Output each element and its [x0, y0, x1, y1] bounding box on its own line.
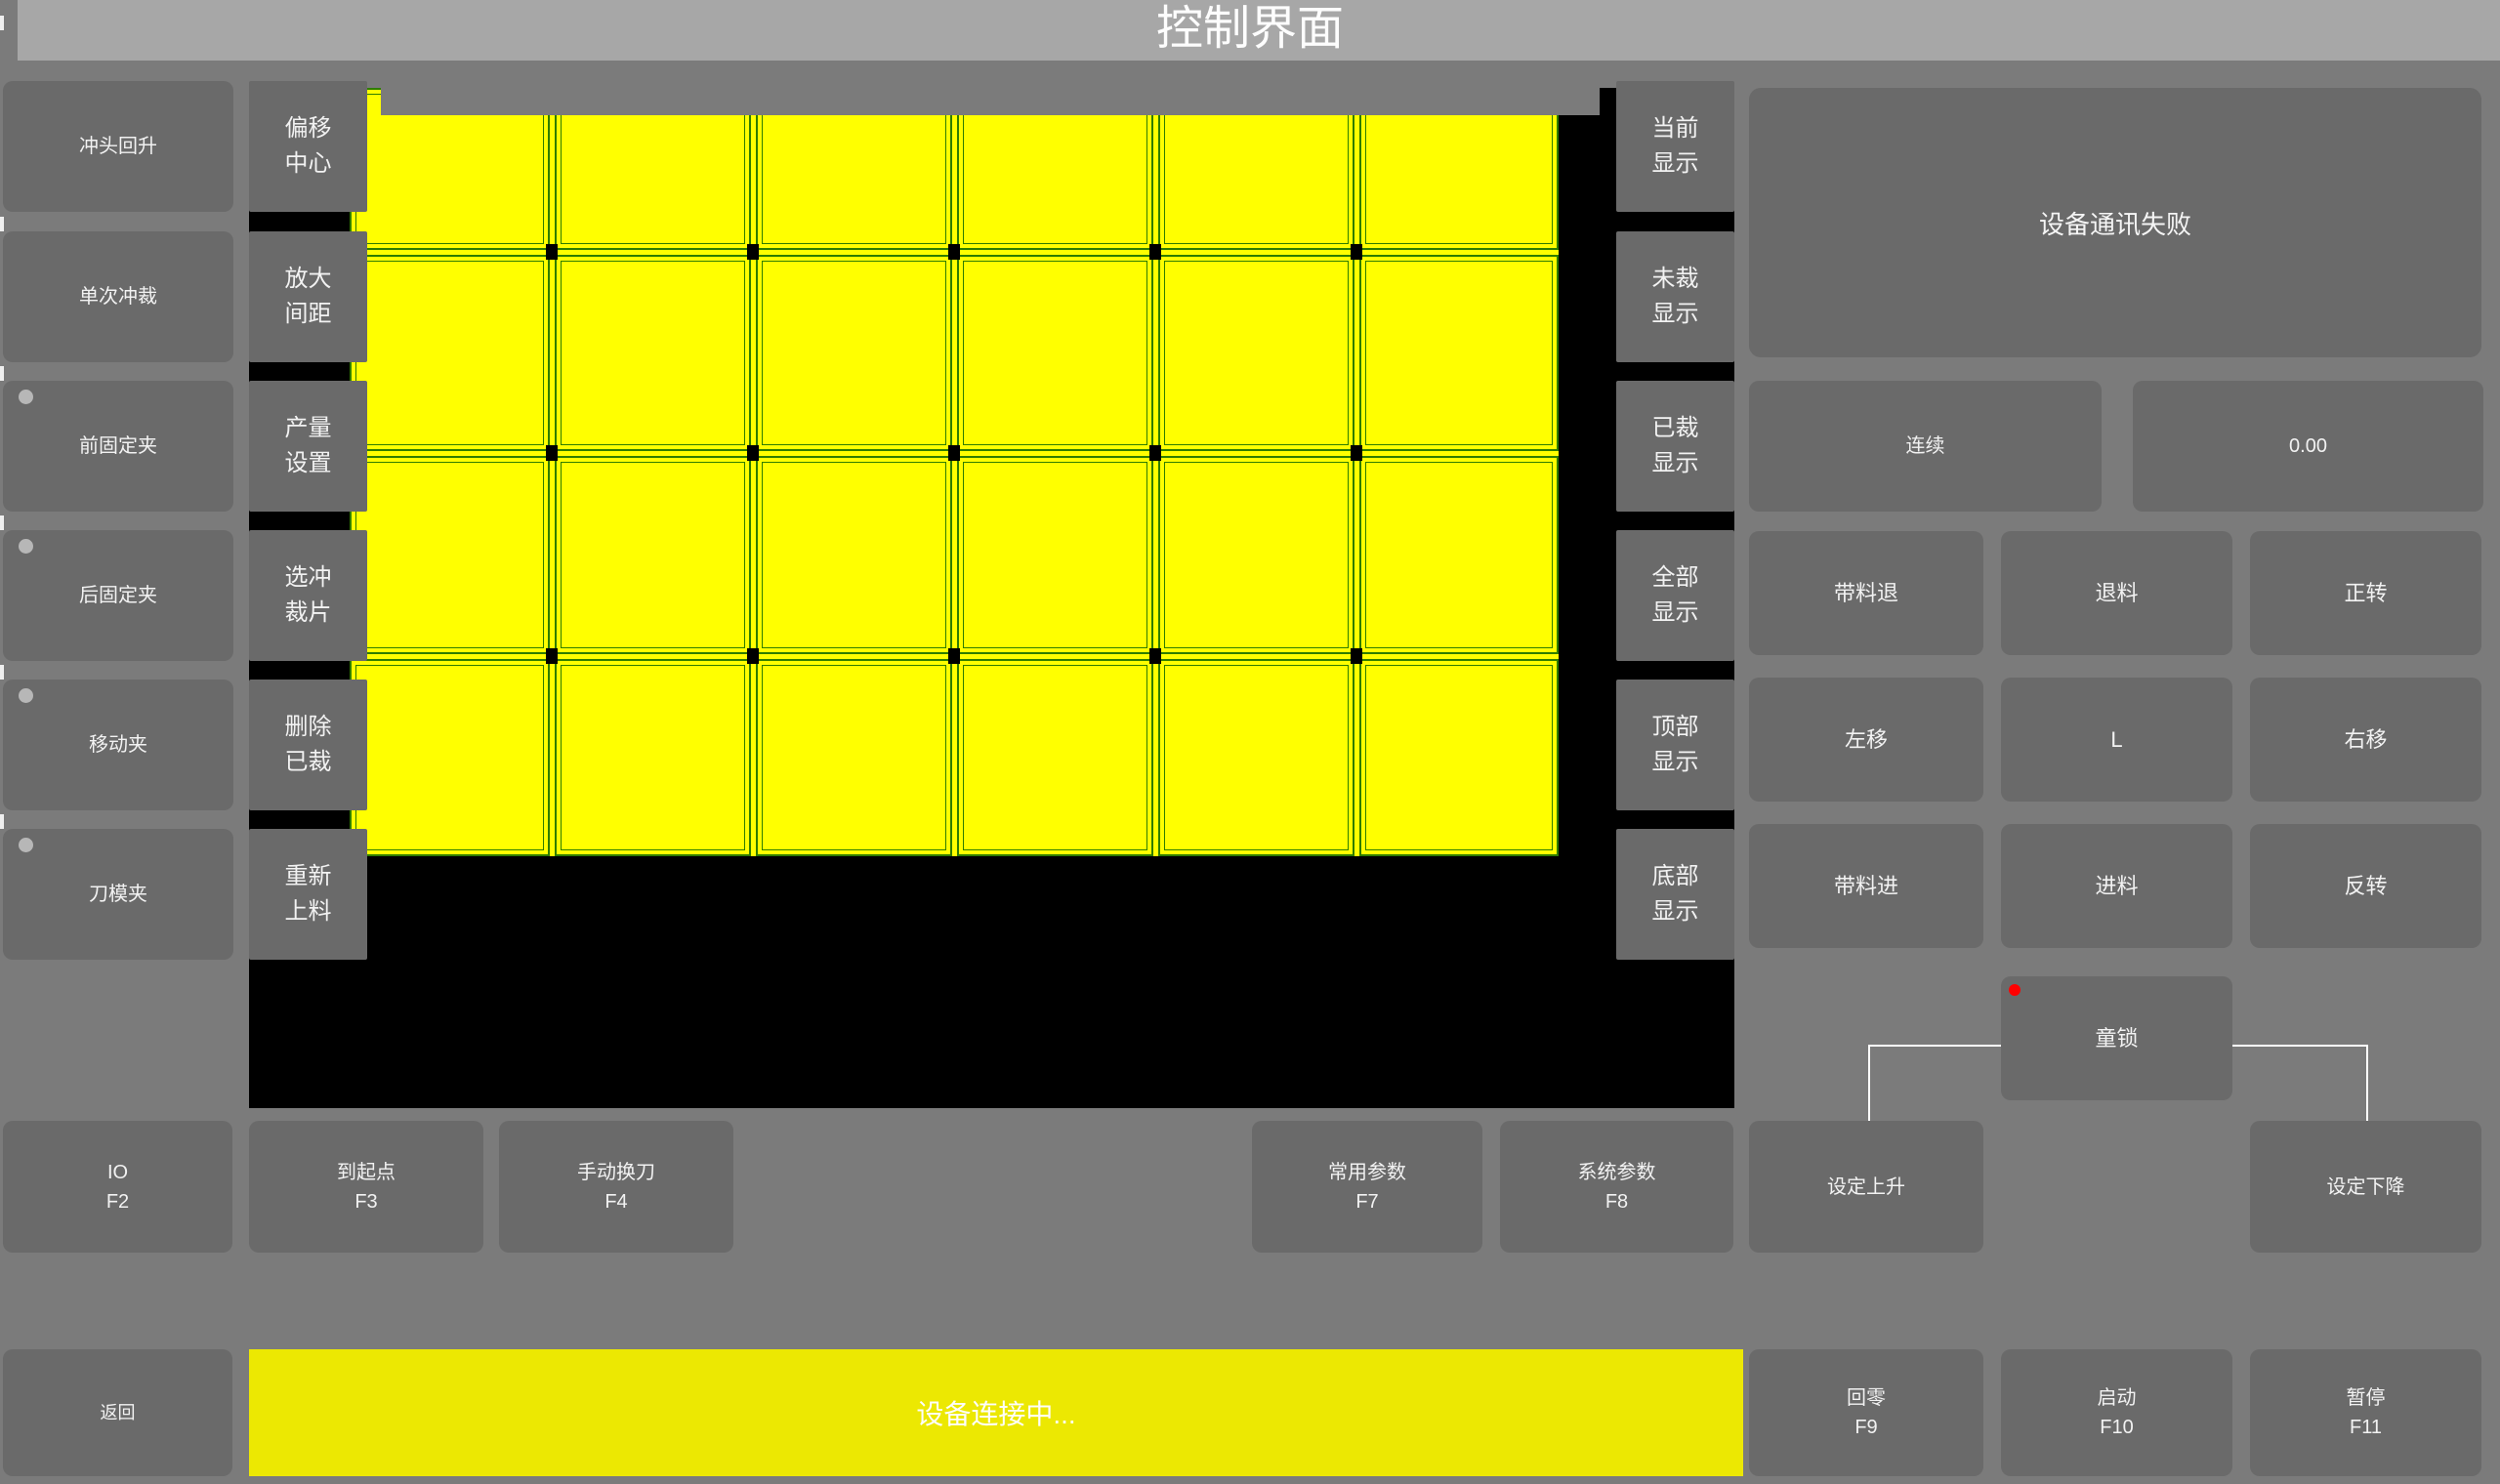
machine-button-1-label: 单次冲裁 — [79, 282, 157, 311]
page-title: 控制界面 — [0, 0, 2500, 61]
nest-piece[interactable] — [957, 456, 1153, 654]
jog-button-0[interactable]: 带料退 — [1749, 531, 1983, 655]
value-display-button[interactable]: 0.00 — [2133, 381, 2483, 512]
nest-piece[interactable] — [350, 456, 550, 654]
tool-button-4[interactable]: 删除 已裁 — [249, 680, 367, 810]
bottom-key-0[interactable]: 回零 F9 — [1749, 1349, 1983, 1476]
grid-notch — [948, 648, 960, 664]
jog-button-4[interactable]: L — [2001, 678, 2232, 802]
bottom-key-1-label: 启动 F10 — [2098, 1383, 2137, 1442]
function-key-0-label: IO F2 — [106, 1158, 129, 1216]
grid-notch — [747, 244, 759, 260]
nest-piece[interactable] — [350, 659, 550, 856]
nest-piece[interactable] — [756, 456, 952, 654]
nest-piece[interactable] — [555, 659, 751, 856]
function-key-3-label: 常用参数 F7 — [1328, 1158, 1406, 1216]
tool-button-5-label: 重新 上料 — [285, 859, 332, 929]
tool-button-2-label: 产量 设置 — [285, 411, 332, 481]
tool-button-1[interactable]: 放大 间距 — [249, 231, 367, 362]
grid-notch — [1149, 648, 1161, 664]
function-key-0[interactable]: IO F2 — [3, 1121, 232, 1253]
function-key-1[interactable]: 到起点 F3 — [249, 1121, 483, 1253]
tool-button-0-label: 偏移 中心 — [285, 111, 332, 182]
function-key-4[interactable]: 系统参数 F8 — [1500, 1121, 1733, 1253]
connection-status-bar: 设备连接中... — [249, 1349, 1743, 1476]
display-button-4-label: 顶部 显示 — [1652, 710, 1699, 780]
jog-button-7-label: 进料 — [2095, 870, 2138, 902]
nest-piece[interactable] — [756, 659, 952, 856]
jog-button-6[interactable]: 带料进 — [1749, 824, 1983, 948]
grid-notch — [546, 445, 558, 461]
child-lock-red-indicator — [2009, 984, 2021, 996]
nest-piece[interactable] — [1359, 456, 1559, 654]
tool-button-2[interactable]: 产量 设置 — [249, 381, 367, 512]
status-panel: 设备通讯失败 — [1749, 88, 2481, 357]
jog-button-8[interactable]: 反转 — [2250, 824, 2481, 948]
edge-tick — [0, 665, 4, 680]
display-button-3-label: 全部 显示 — [1652, 560, 1699, 631]
nest-piece[interactable] — [1158, 456, 1354, 654]
nest-piece[interactable] — [957, 659, 1153, 856]
nesting-canvas[interactable] — [249, 88, 1734, 1108]
jog-button-3[interactable]: 左移 — [1749, 678, 1983, 802]
display-button-0[interactable]: 当前 显示 — [1616, 81, 1734, 212]
jog-button-5[interactable]: 右移 — [2250, 678, 2481, 802]
machine-button-2-label: 前固定夹 — [79, 432, 157, 461]
grid-notch — [747, 648, 759, 664]
machine-button-4-label: 移动夹 — [89, 730, 147, 760]
nest-piece[interactable] — [555, 456, 751, 654]
machine-button-0-label: 冲头回升 — [79, 132, 157, 161]
display-button-0-label: 当前 显示 — [1652, 111, 1699, 182]
clamp-indicator-dot — [19, 688, 33, 703]
nest-piece[interactable] — [957, 255, 1153, 451]
nest-piece[interactable] — [1158, 255, 1354, 451]
title-bar: 控制界面 — [0, 0, 2500, 61]
edge-tick — [0, 515, 4, 530]
nest-piece[interactable] — [350, 255, 550, 451]
function-key-2-label: 手动换刀 F4 — [577, 1158, 655, 1216]
function-key-5[interactable]: 设定上升 — [1749, 1121, 1983, 1253]
bottom-key-1[interactable]: 启动 F10 — [2001, 1349, 2232, 1476]
status-message: 设备通讯失败 — [2039, 205, 2191, 241]
grid-notch — [747, 445, 759, 461]
clamp-indicator-dot — [19, 838, 33, 852]
canvas-top-strip — [381, 88, 1600, 115]
edge-tick — [0, 217, 4, 231]
display-button-3[interactable]: 全部 显示 — [1616, 530, 1734, 661]
bottom-key-0-label: 回零 F9 — [1847, 1383, 1886, 1442]
display-button-1[interactable]: 未裁 显示 — [1616, 231, 1734, 362]
display-button-2[interactable]: 已裁 显示 — [1616, 381, 1734, 512]
jog-button-2[interactable]: 正转 — [2250, 531, 2481, 655]
function-key-2[interactable]: 手动换刀 F4 — [499, 1121, 733, 1253]
grid-notch — [948, 244, 960, 260]
piece-grid — [350, 88, 1559, 856]
child-lock-button[interactable]: 童锁 — [2001, 976, 2232, 1100]
display-button-4[interactable]: 顶部 显示 — [1616, 680, 1734, 810]
back-button[interactable]: 返回 — [3, 1349, 232, 1476]
function-key-4-label: 系统参数 F8 — [1578, 1158, 1656, 1216]
machine-button-3[interactable]: 后固定夹 — [3, 530, 233, 661]
display-button-2-label: 已裁 显示 — [1652, 411, 1699, 481]
connection-status-text: 设备连接中... — [916, 1393, 1075, 1432]
grid-notch — [948, 445, 960, 461]
display-button-1-label: 未裁 显示 — [1652, 262, 1699, 332]
jog-button-4-label: L — [2110, 723, 2122, 756]
grid-notch — [1149, 244, 1161, 260]
machine-button-1[interactable]: 单次冲裁 — [3, 231, 233, 362]
clamp-indicator-dot — [19, 539, 33, 554]
tool-button-5[interactable]: 重新 上料 — [249, 829, 367, 960]
grid-notch — [546, 648, 558, 664]
nest-piece[interactable] — [1359, 255, 1559, 451]
tool-button-1-label: 放大 间距 — [285, 262, 332, 332]
jog-button-5-label: 右移 — [2344, 723, 2387, 756]
jog-button-3-label: 左移 — [1845, 723, 1888, 756]
nest-piece[interactable] — [555, 255, 751, 451]
machine-button-0[interactable]: 冲头回升 — [3, 81, 233, 212]
jog-button-1[interactable]: 退料 — [2001, 531, 2232, 655]
tool-button-3[interactable]: 选冲 裁片 — [249, 530, 367, 661]
grid-notch — [1351, 648, 1362, 664]
child-lock-label: 童锁 — [2095, 1022, 2138, 1054]
bottom-key-2-label: 暂停 F11 — [2347, 1383, 2386, 1442]
jog-button-7[interactable]: 进料 — [2001, 824, 2232, 948]
mode-continuous-button[interactable]: 连续 — [1749, 381, 2102, 512]
grid-notch — [546, 244, 558, 260]
function-key-5-label: 设定上升 — [1827, 1173, 1905, 1202]
edge-tick — [0, 366, 4, 381]
clamp-indicator-dot — [19, 390, 33, 404]
edge-tick — [0, 814, 4, 829]
control-screen: 控制界面 冲头回升单次冲裁前固定夹后固定夹移动夹刀模夹 偏移 中心放大 间距产量… — [0, 0, 2500, 1484]
nest-piece[interactable] — [1158, 659, 1354, 856]
function-key-6[interactable]: 设定下降 — [2250, 1121, 2481, 1253]
bottom-key-2[interactable]: 暂停 F11 — [2250, 1349, 2481, 1476]
tool-button-3-label: 选冲 裁片 — [285, 560, 332, 631]
machine-button-3-label: 后固定夹 — [79, 581, 157, 610]
jog-button-6-label: 带料进 — [1834, 870, 1898, 902]
function-key-6-label: 设定下降 — [2327, 1173, 2405, 1202]
function-key-1-label: 到起点 F3 — [337, 1158, 396, 1216]
jog-button-1-label: 退料 — [2095, 577, 2138, 609]
machine-button-5[interactable]: 刀模夹 — [3, 829, 233, 960]
jog-button-0-label: 带料退 — [1834, 577, 1898, 609]
tool-button-0[interactable]: 偏移 中心 — [249, 81, 367, 212]
nest-piece[interactable] — [756, 255, 952, 451]
machine-button-5-label: 刀模夹 — [89, 880, 147, 909]
tool-button-4-label: 删除 已裁 — [285, 710, 332, 780]
grid-notch — [1351, 445, 1362, 461]
edge-tick — [0, 16, 4, 30]
jog-button-2-label: 正转 — [2344, 577, 2387, 609]
function-key-3[interactable]: 常用参数 F7 — [1252, 1121, 1482, 1253]
jog-button-8-label: 反转 — [2344, 870, 2387, 902]
display-button-5[interactable]: 底部 显示 — [1616, 829, 1734, 960]
machine-button-4[interactable]: 移动夹 — [3, 680, 233, 810]
grid-notch — [1351, 244, 1362, 260]
machine-button-2[interactable]: 前固定夹 — [3, 381, 233, 512]
grid-notch — [1149, 445, 1161, 461]
nest-piece[interactable] — [1359, 659, 1559, 856]
display-button-5-label: 底部 显示 — [1652, 859, 1699, 929]
